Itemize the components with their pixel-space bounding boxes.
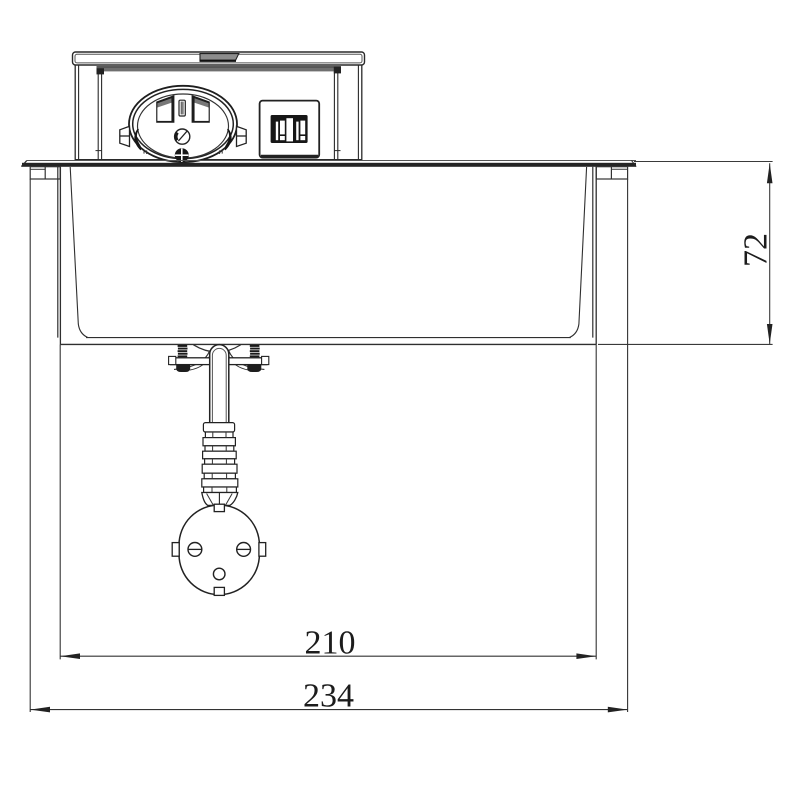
- svg-text:234: 234: [303, 677, 354, 714]
- svg-text:210: 210: [305, 625, 356, 662]
- svg-text:72: 72: [738, 233, 775, 267]
